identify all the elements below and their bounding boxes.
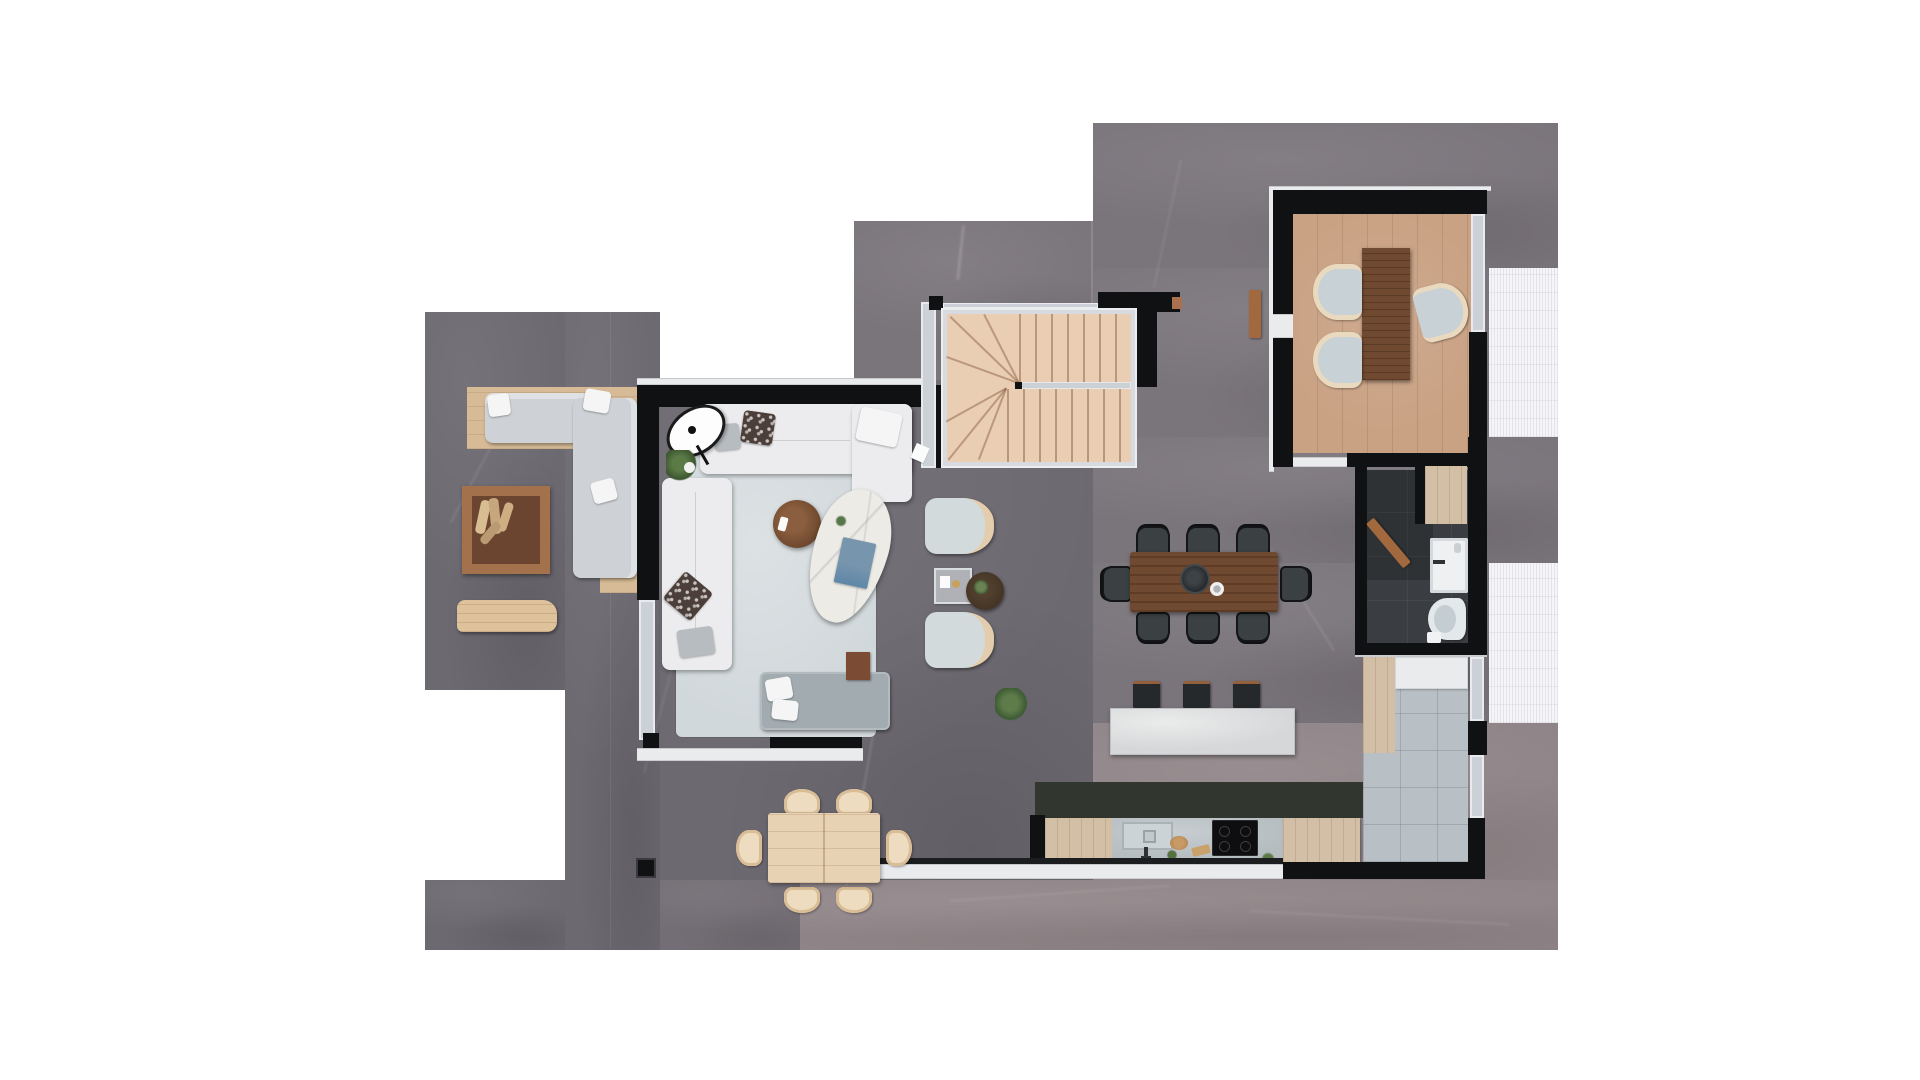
study-wall-left-upper [1273, 190, 1293, 314]
south-wall-corner [1468, 818, 1485, 879]
outdoor-chair [836, 789, 872, 815]
kitchen-wall-end-left [1030, 815, 1045, 863]
bathroom-wardrobe [1425, 466, 1467, 524]
cooktop-burner [1219, 826, 1230, 837]
kitchen-cabinet-left [1045, 818, 1112, 860]
living-window-right [921, 302, 936, 468]
cooktop-burner [1219, 841, 1230, 852]
study-room [1269, 186, 1491, 474]
study-door-opening [1273, 314, 1293, 338]
floor-lamp-stem [688, 426, 696, 434]
outdoor-pillow [582, 388, 611, 414]
bath-accessory [1427, 632, 1441, 643]
daybed-pillow [771, 699, 799, 722]
plant-living-bottom [995, 688, 1029, 722]
entry-wall-seg [1468, 721, 1487, 755]
daybed-pillow [764, 676, 793, 702]
kitchen-island [1110, 708, 1295, 755]
sofa-pillow-gray [676, 626, 716, 659]
outdoor-chair [784, 887, 820, 913]
study-wall-top [1273, 190, 1487, 214]
glass-table-vase [952, 580, 960, 588]
staircase [935, 292, 1185, 472]
stairs-wall-cap-wood [1172, 297, 1182, 309]
slab-bottom-band-left [660, 880, 800, 950]
dining-chair [1136, 612, 1170, 642]
deck-upper [1489, 268, 1558, 437]
bar-stool [1133, 681, 1160, 710]
entry-door-track-1 [1470, 657, 1484, 721]
study-opening-bottom [1293, 457, 1347, 467]
stairs-divider-post [1015, 382, 1022, 389]
wardrobe-wall-seg [1415, 466, 1425, 524]
deck-lower [1489, 563, 1558, 723]
slab-terrace-left-bottom [425, 880, 565, 950]
kitchen-cabinet-right [1283, 818, 1360, 862]
entry-counter [1395, 657, 1468, 689]
stairs-wall-right [1137, 308, 1157, 387]
study-chair [1313, 264, 1362, 320]
study-window-right [1471, 214, 1485, 332]
cooktop-burner [1240, 841, 1251, 852]
wash-basin [1430, 538, 1468, 593]
sink-drain [1143, 830, 1156, 843]
living-sill-top [637, 378, 930, 385]
outdoor-chair [836, 887, 872, 913]
sofa-pillow-pattern [740, 410, 776, 446]
terrace-column [636, 858, 656, 878]
cooktop [1212, 820, 1258, 856]
outdoor-chair [784, 789, 820, 815]
outdoor-pillow [487, 393, 512, 418]
cooktop-burner [1240, 826, 1251, 837]
kitchen-dark-band [1035, 782, 1365, 818]
bathroom-wall-bottom [1355, 643, 1487, 657]
study-wall-left-lower [1273, 338, 1293, 467]
living-wall-left [637, 385, 659, 600]
side-table-plant [974, 580, 988, 594]
floor-plan-canvas [0, 0, 1920, 1080]
armchair-1 [925, 498, 994, 554]
dining-chair [1186, 612, 1220, 642]
living-wall-bottom-seg [770, 735, 862, 749]
dining-bowl [1182, 566, 1208, 592]
entry-door-track-2 [1470, 755, 1484, 818]
basin-faucet [1433, 560, 1445, 564]
stairs-lower-treads [1007, 389, 1131, 462]
bar-stool [1183, 681, 1210, 710]
armchair-2 [925, 612, 994, 668]
outdoor-table-seam [823, 813, 825, 883]
south-window-sill [851, 864, 1283, 879]
south-wall-black [1283, 862, 1468, 879]
dining-cup [1210, 582, 1224, 596]
dining-chair [1236, 612, 1270, 642]
outdoor-chair [886, 830, 912, 866]
outdoor-chair [736, 830, 762, 866]
bathroom-wall-right [1468, 437, 1487, 645]
study-chair [1313, 332, 1362, 388]
side-cube [846, 652, 870, 680]
dining-chair [1280, 566, 1310, 602]
bread-item [1170, 836, 1188, 850]
living-sill-bottom [637, 748, 863, 761]
living-corner-post [643, 733, 659, 749]
study-door-leaf [1249, 290, 1261, 338]
plant-pot [684, 462, 695, 473]
stairs-divider-rail [1015, 382, 1131, 389]
outdoor-bench [457, 600, 557, 632]
dining-chair [1102, 566, 1132, 602]
glass-table-card [940, 576, 950, 588]
entry-wardrobe [1363, 657, 1395, 753]
study-desk [1362, 248, 1410, 380]
living-window-left [639, 600, 655, 740]
stairs-upper-treads [1019, 314, 1131, 382]
decor-plant-small [834, 514, 848, 528]
basin-soap [1454, 543, 1461, 553]
bathroom-wall-left [1355, 462, 1367, 657]
bar-stool [1233, 681, 1260, 710]
toilet-seat [1434, 605, 1456, 633]
